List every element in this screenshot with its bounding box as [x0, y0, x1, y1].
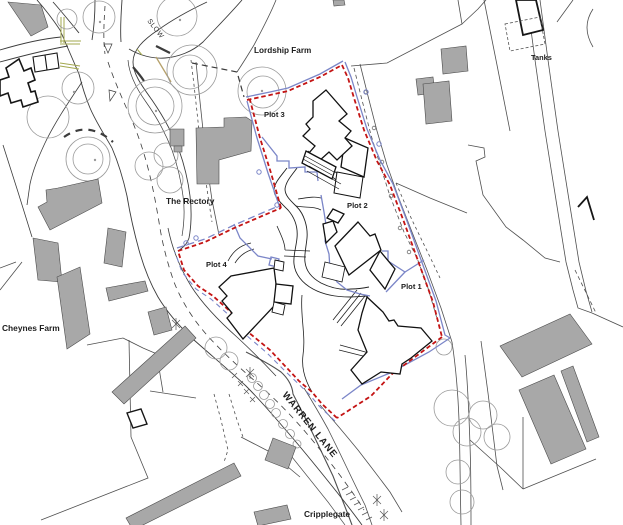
svg-text:Lordship Farm: Lordship Farm — [254, 46, 311, 55]
svg-text:Tanks: Tanks — [531, 53, 552, 62]
svg-text:Plot 4: Plot 4 — [206, 260, 227, 269]
svg-text:Cripplegate: Cripplegate — [304, 509, 350, 519]
svg-text:The Rectory: The Rectory — [166, 196, 215, 206]
svg-text:Cheynes Farm: Cheynes Farm — [2, 323, 60, 333]
svg-text:Plot 3: Plot 3 — [264, 110, 285, 119]
svg-text:Plot 1: Plot 1 — [401, 282, 422, 291]
svg-text:Plot 2: Plot 2 — [347, 201, 368, 210]
